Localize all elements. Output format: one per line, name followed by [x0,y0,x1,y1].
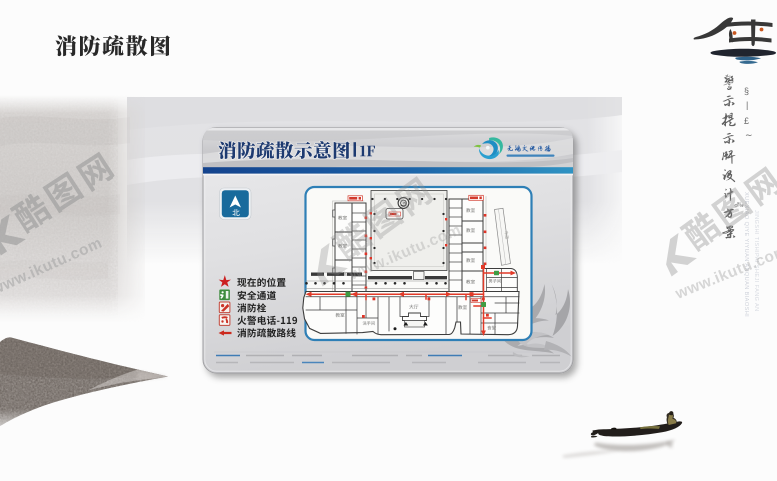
svg-text:∼: ∼ [745,130,753,140]
svg-text:£: £ [744,116,749,126]
svg-text:|: | [746,100,748,110]
svg-text:§: § [744,86,749,96]
